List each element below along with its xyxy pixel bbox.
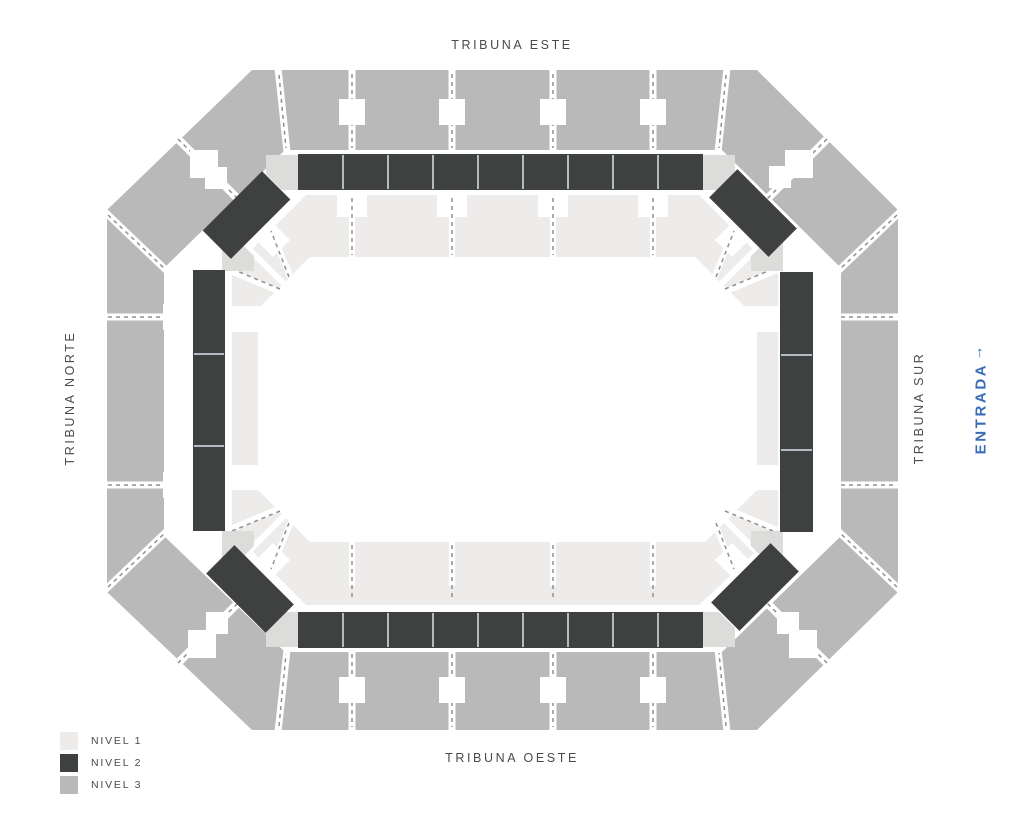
nivel-3-swatch xyxy=(60,776,78,794)
legend: NIVEL 1 NIVEL 2 NIVEL 3 xyxy=(60,732,142,798)
nivel-3-label: NIVEL 3 xyxy=(91,776,142,794)
entrance-text: ENTRADA xyxy=(973,363,990,455)
seat-map-page: TRIBUNA ESTE TRIBUNA OESTE TRIBUNA NORTE… xyxy=(0,0,1024,839)
stand-label-este: TRIBUNA ESTE xyxy=(0,38,1024,52)
nivel-1-label: NIVEL 1 xyxy=(91,732,142,750)
nivel-1-ring[interactable] xyxy=(232,195,778,605)
nivel-2-section-left[interactable] xyxy=(193,270,225,531)
stand-label-norte: TRIBUNA NORTE xyxy=(63,331,77,466)
legend-item-nivel-3: NIVEL 3 xyxy=(60,776,142,794)
legend-item-nivel-2: NIVEL 2 xyxy=(60,754,142,772)
nivel-2-swatch xyxy=(60,754,78,772)
entrance-label: ENTRADA↑ xyxy=(973,348,990,455)
nivel-1-swatch xyxy=(60,732,78,750)
nivel-1-dashed-dividers xyxy=(232,198,773,601)
stadium-map xyxy=(0,0,1024,839)
stand-label-oeste: TRIBUNA OESTE xyxy=(0,751,1024,765)
nivel-2-section-bottom[interactable] xyxy=(298,612,703,648)
nivel-2-section-top[interactable] xyxy=(298,154,703,190)
entrance-arrow-icon: ↑ xyxy=(976,344,986,361)
legend-item-nivel-1: NIVEL 1 xyxy=(60,732,142,750)
stand-label-sur: TRIBUNA SUR xyxy=(912,352,926,465)
nivel-2-label: NIVEL 2 xyxy=(91,754,142,772)
nivel-2-section-right[interactable] xyxy=(780,272,813,532)
